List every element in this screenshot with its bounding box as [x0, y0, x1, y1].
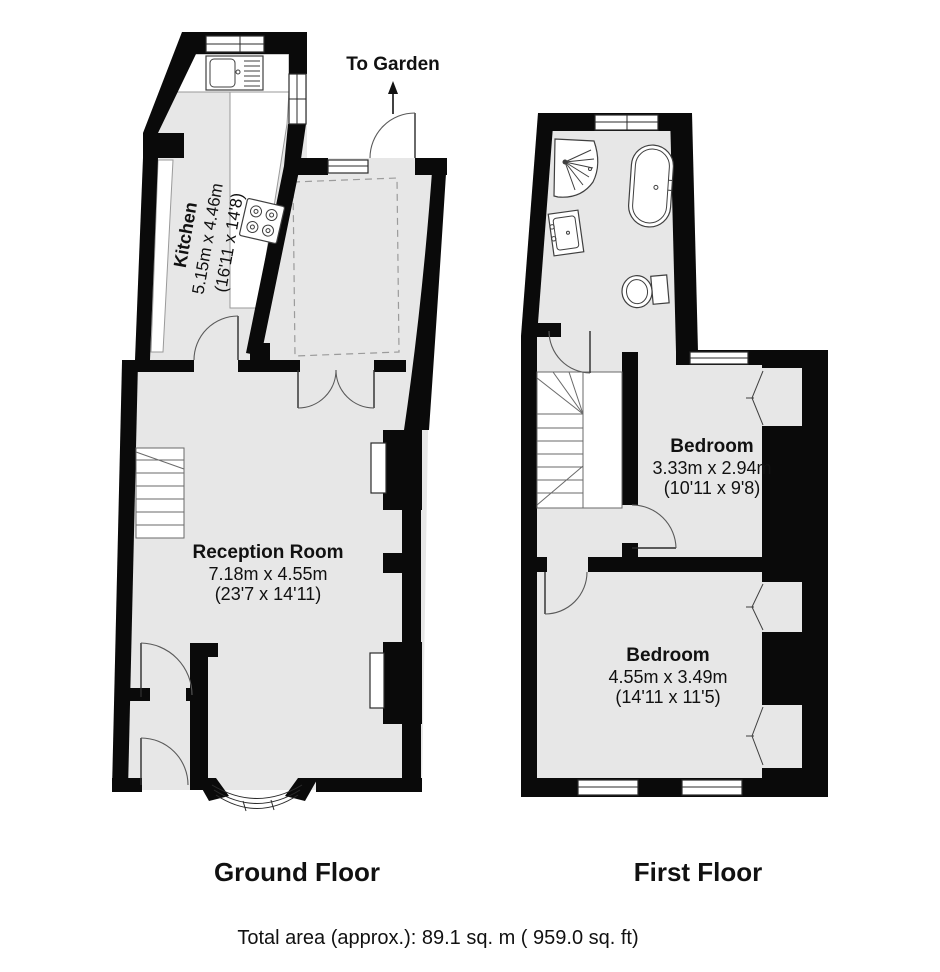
floorplan-drawing: Kitchen 5.15m x 4.46m (16'11 x 14'8) Rec… — [0, 0, 940, 972]
to-garden-label: To Garden — [346, 54, 440, 75]
floorplan-page: Kitchen 5.15m x 4.46m (16'11 x 14'8) Rec… — [0, 0, 940, 972]
bedroom1-name: Bedroom — [670, 436, 753, 457]
kitchen-hob — [239, 198, 285, 244]
first-bottom-wall — [521, 778, 828, 797]
bedroom2-window-right — [682, 780, 742, 795]
reception-window-a-reveal — [383, 430, 422, 510]
hall-reception-wall — [190, 645, 208, 790]
reception-metric: 7.18m x 4.55m — [208, 564, 327, 584]
kitchen-sink — [206, 56, 263, 90]
reception-window-b-reveal — [383, 642, 422, 724]
kitchen-side-window — [289, 74, 306, 124]
bedroom1-label: Bedroom 3.33m x 2.94m (10'11 x 9'8) — [652, 436, 771, 498]
ground-floor-stairs — [136, 448, 184, 538]
ground-floor-plan: Kitchen 5.15m x 4.46m (16'11 x 14'8) Rec… — [112, 32, 447, 811]
bedroom1-metric: 3.33m x 2.94m — [652, 458, 771, 478]
bedroom1-alcove-top-fill — [762, 350, 802, 368]
bedroom2-window-left — [578, 780, 638, 795]
total-area-text: Total area (approx.): 89.1 sq. m ( 959.0… — [237, 927, 638, 949]
kitchen-top-window — [206, 36, 264, 52]
first-floor-plan: Bedroom 3.33m x 2.94m (10'11 x 9'8) Bedr… — [521, 113, 828, 797]
first-left-wall — [521, 336, 537, 797]
garden-arrow-head — [388, 81, 398, 94]
first-floor-stairs — [537, 372, 622, 508]
bedroom1-imperial: (10'11 x 9'8) — [664, 478, 761, 498]
kitchen-left-wall-notch — [143, 133, 184, 158]
bathroom-window — [595, 115, 658, 130]
reception-window-b — [370, 653, 384, 708]
reception-name: Reception Room — [193, 542, 344, 563]
reception-window-a — [371, 443, 386, 493]
bathtub — [627, 144, 675, 229]
bathroom-door-stub — [530, 323, 561, 337]
extension-top-wall-left — [296, 158, 328, 175]
extension-window — [328, 160, 368, 173]
bedroom-divider-wall — [588, 557, 802, 572]
ground-floor-title: Ground Floor — [214, 857, 380, 887]
kitchen-reception-wall-mid — [238, 360, 300, 372]
bedroom2-chimney-breast — [762, 632, 802, 705]
bedroom2-label: Bedroom 4.55m x 3.49m (14'11 x 11'5) — [608, 645, 727, 707]
kitchen-right-wall-upper — [289, 54, 307, 74]
garden-door — [370, 113, 415, 158]
first-floor-title: First Floor — [634, 857, 763, 887]
reception-imperial: (23'7 x 14'11) — [215, 584, 322, 604]
reception-label: Reception Room 7.18m x 4.55m (23'7 x 14'… — [193, 542, 344, 604]
bedroom2-door-stub — [537, 557, 547, 572]
bedroom1-chimney-fill — [762, 426, 802, 557]
toilet — [621, 273, 670, 309]
bedroom2-alcove-top-fill — [762, 571, 802, 582]
hall-wall-cap — [190, 643, 218, 657]
kitchen-reception-wall-right — [374, 360, 406, 372]
landing-bedroom1-wall — [622, 352, 638, 505]
bedroom1-window — [690, 352, 748, 364]
first-right-wall — [802, 350, 828, 797]
shower-head — [563, 160, 568, 165]
hall-partition-left — [126, 688, 150, 701]
bedroom2-name: Bedroom — [626, 645, 709, 666]
bedroom2-imperial: (14'11 x 11'5) — [615, 687, 720, 707]
bathroom-basin — [548, 210, 584, 256]
front-wall-left — [112, 778, 142, 792]
to-garden-annotation: To Garden — [346, 54, 440, 114]
front-wall-right — [316, 778, 422, 792]
bedroom2-metric: 4.55m x 3.49m — [608, 667, 727, 687]
reception-chimney-breast — [383, 553, 404, 573]
